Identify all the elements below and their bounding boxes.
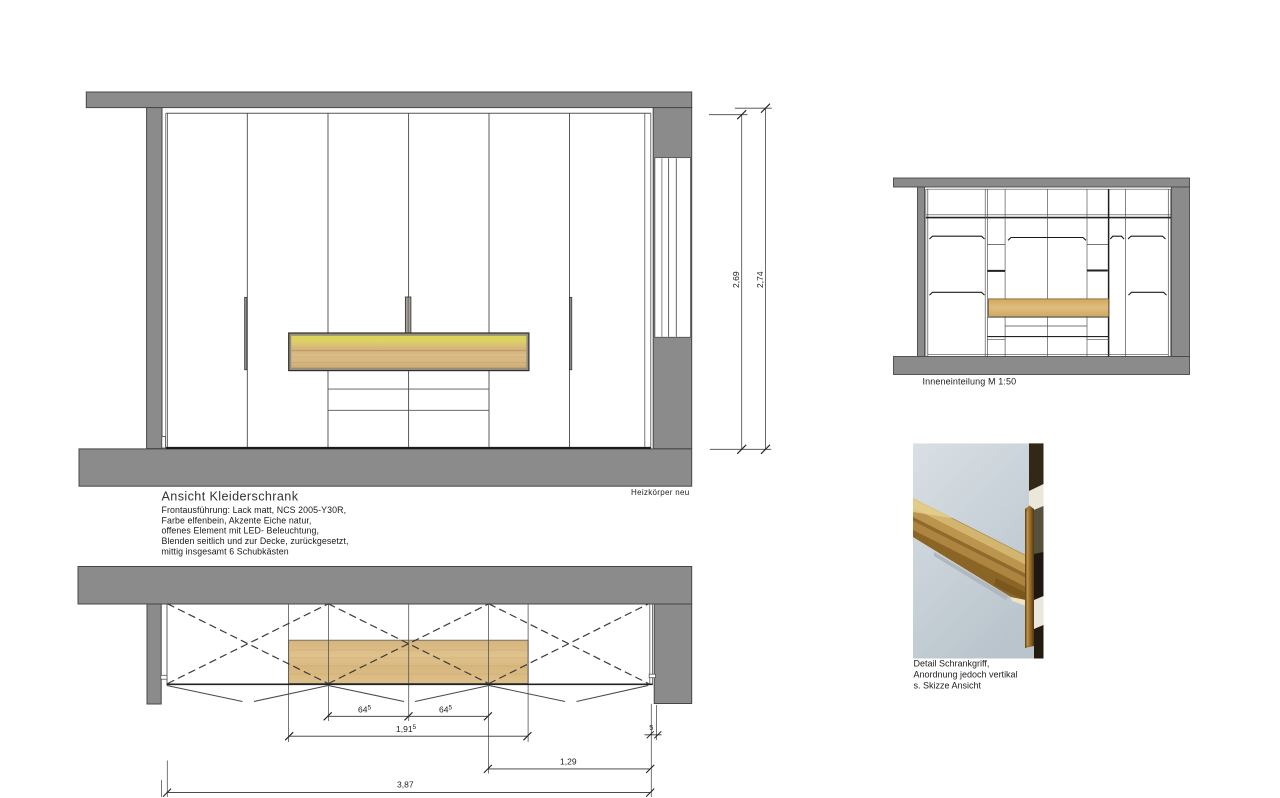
svg-text:offenes Element mit LED- Beleu: offenes Element mit LED- Beleuchtung, (162, 526, 320, 536)
svg-text:5: 5 (649, 723, 653, 732)
svg-text:2,69: 2,69 (731, 271, 741, 288)
svg-text:Blenden seitlich und zur Decke: Blenden seitlich und zur Decke, zurückge… (162, 536, 349, 546)
svg-text:Detail Schrankgriff,: Detail Schrankgriff, (914, 659, 990, 669)
svg-text:Anordnung jedoch vertikal: Anordnung jedoch vertikal (914, 670, 1018, 680)
svg-text:Heizkörper neu: Heizkörper neu (631, 488, 689, 497)
svg-text:mittig insgesamt 6 Schubkästen: mittig insgesamt 6 Schubkästen (162, 546, 289, 556)
svg-text:1,29: 1,29 (560, 756, 577, 766)
svg-text:s. Skizze Ansicht: s. Skizze Ansicht (914, 681, 982, 691)
svg-text:2,74: 2,74 (755, 271, 765, 288)
svg-text:Inneneinteilung M 1:50: Inneneinteilung M 1:50 (923, 377, 1017, 387)
svg-text:Frontausführung: Lack matt, NC: Frontausführung: Lack matt, NCS 2005-Y30… (162, 505, 347, 515)
svg-text:Ansicht Kleiderschrank: Ansicht Kleiderschrank (162, 490, 299, 504)
svg-text:3,87: 3,87 (397, 779, 414, 789)
svg-text:Farbe elfenbein, Akzente Eiche: Farbe elfenbein, Akzente Eiche natur, (162, 515, 312, 525)
